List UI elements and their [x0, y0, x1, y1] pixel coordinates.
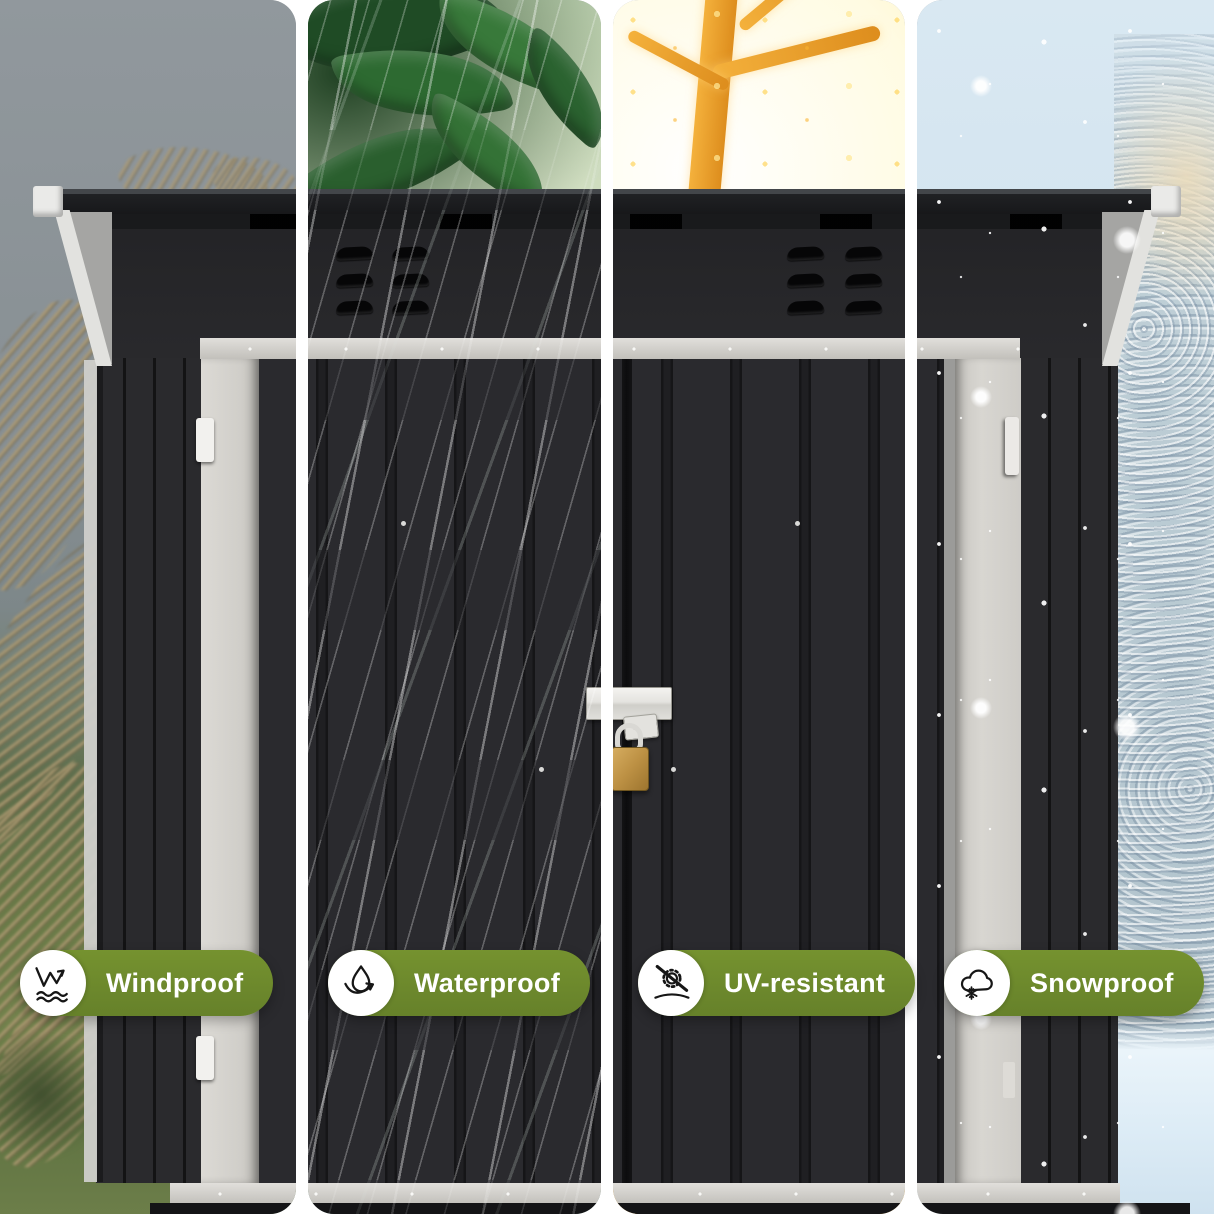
feature-label: Windproof: [106, 968, 243, 999]
door-jamb-right: [944, 358, 955, 1183]
feature-badge-windproof: Windproof: [20, 950, 273, 1016]
shed-slice: [0, 0, 296, 1214]
door-top-rail: [200, 338, 296, 359]
panel-sun-scene: [613, 0, 905, 1214]
vent: [787, 246, 825, 261]
feature-badge-snowproof: Snowproof: [944, 950, 1204, 1016]
shed-base: [308, 1203, 601, 1214]
screw: [795, 521, 800, 526]
panel-snow-scene: [917, 0, 1214, 1214]
shed-double-door: [259, 358, 296, 1183]
vent: [336, 246, 374, 261]
door-latch: [586, 687, 601, 720]
shed-base: [613, 1203, 905, 1214]
corner-trim-shadow: [97, 360, 103, 1182]
feature-label: UV-resistant: [724, 968, 885, 999]
shed-slice: [308, 0, 601, 1214]
vent: [845, 300, 883, 315]
vent: [845, 273, 883, 288]
door-top-rail: [917, 338, 1020, 359]
shed-base-rail: [613, 1183, 905, 1204]
shed-slice: [613, 0, 905, 1214]
shed-double-door: [308, 358, 601, 1183]
vent: [392, 300, 430, 315]
vent: [392, 273, 430, 288]
shed-base-rail: [917, 1183, 1120, 1204]
no-uv-sun-icon: [638, 950, 704, 1016]
vent: [336, 300, 374, 315]
corner-trim: [84, 360, 97, 1182]
roof-corner-cap-left: [33, 186, 63, 217]
vent: [845, 246, 883, 261]
vent: [336, 273, 374, 288]
water-drop-icon: [328, 950, 394, 1016]
shed-base-rail: [308, 1183, 601, 1204]
screw: [671, 767, 676, 772]
shed-slice: [917, 0, 1214, 1214]
door-top-rail: [613, 338, 905, 359]
feature-label: Waterproof: [414, 968, 560, 999]
vent: [787, 300, 825, 315]
shed-base: [917, 1203, 1190, 1214]
shed-right-door: [955, 358, 1021, 1183]
shed-base: [150, 1203, 296, 1214]
roof: [613, 194, 905, 216]
door-hinge: [196, 1036, 214, 1080]
roof-rafter-slots: [308, 214, 601, 229]
roof: [308, 194, 601, 216]
wind-icon: [20, 950, 86, 1016]
shed-side-panel-right: [1021, 358, 1118, 1183]
padlock: [613, 747, 649, 791]
vent: [787, 273, 825, 288]
door-hinge: [1003, 1062, 1015, 1098]
screw: [539, 767, 544, 772]
door-hinge: [196, 418, 214, 462]
door-top-rail: [308, 338, 601, 359]
roof-rafter-slots: [613, 214, 905, 229]
product-weather-feature-image: Windproof Waterproof UV-resistant: [0, 0, 1214, 1214]
panel-rain-scene: [308, 0, 601, 1214]
shed-double-door: [917, 358, 945, 1183]
screw: [401, 521, 406, 526]
feature-badge-waterproof: Waterproof: [328, 950, 590, 1016]
shed-double-door: [613, 358, 905, 1183]
feature-badge-uv-resistant: UV-resistant: [638, 950, 915, 1016]
roof-corner-cap-right: [1151, 186, 1181, 217]
panel-windy-scene: [0, 0, 296, 1214]
shed-side-panel-left: [96, 358, 202, 1183]
shed-base-rail: [170, 1183, 296, 1204]
vent: [392, 246, 430, 261]
feature-label: Snowproof: [1030, 968, 1174, 999]
snow-cloud-icon: [944, 950, 1010, 1016]
door-handle: [1005, 417, 1019, 475]
